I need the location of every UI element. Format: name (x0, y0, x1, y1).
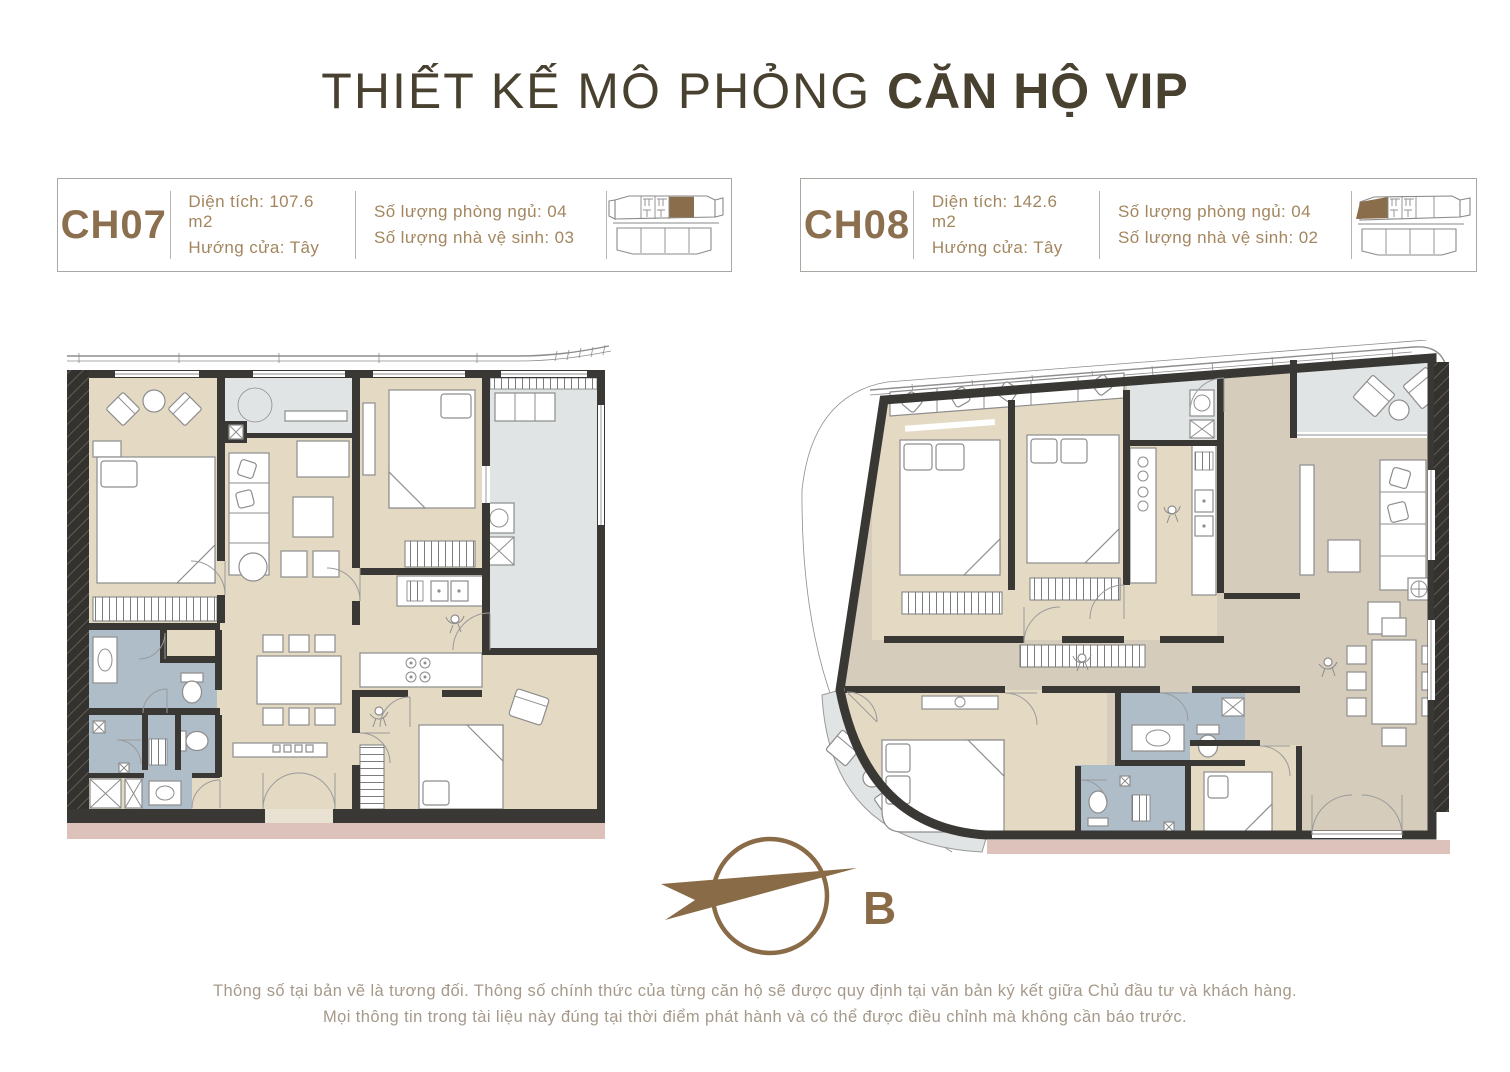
tv-cabinet-icon (297, 441, 349, 477)
pouf-icon (239, 553, 267, 581)
base-strip (67, 823, 605, 839)
compass-label: B (863, 882, 896, 934)
floorplan-ch08 (772, 340, 1462, 860)
brochure-page: THIẾT KẾ MÔ PHỎNG CĂN HỘ VIP CH07 Diện t… (0, 0, 1510, 1072)
shaft-icon (90, 779, 121, 808)
shaft-icon (1190, 420, 1214, 438)
unit-info-ch07: CH07 Diện tích: 107.6 m2 Hướng cửa: Tây … (57, 178, 732, 272)
side-table-icon (1389, 400, 1409, 420)
unit-area: Diện tích: 107.6 m2 (188, 192, 337, 232)
unit-door-direction: Hướng cửa: Tây (932, 238, 1081, 258)
unit-code-ch07: CH07 (58, 179, 170, 271)
closet-icon (363, 403, 375, 475)
unit-bedrooms: Số lượng phòng ngủ: 04 (1118, 202, 1333, 222)
footer-line-2: Mọi thông tin trong tài liệu này đúng tạ… (0, 1008, 1510, 1027)
compass: B (645, 822, 905, 972)
shaft-icon (125, 779, 142, 808)
floorplan-ch07 (57, 345, 617, 845)
ac-unit-icon (495, 393, 555, 421)
kitchen-sink-counter-icon (1192, 445, 1216, 595)
kitchen-sink-counter-icon (397, 576, 483, 606)
page-title: THIẾT KẾ MÔ PHỎNG CĂN HỘ VIP (0, 62, 1510, 120)
planter-icon (490, 378, 597, 389)
wardrobe-icon (405, 541, 475, 567)
console-table-icon (233, 743, 327, 757)
unit-specs-1: Diện tích: 142.6 m2 Hướng cửa: Tây (914, 179, 1099, 271)
shaft-icon (229, 425, 243, 439)
unit-locator-ch07 (607, 179, 731, 271)
wardrobe-icon (1030, 578, 1120, 600)
floor-outlet-icon (1408, 578, 1430, 600)
planter-icon (285, 411, 347, 421)
stool-icon (281, 551, 307, 577)
floor-drain-icon (119, 763, 129, 773)
shower-grille-icon (1132, 795, 1150, 821)
unit-code-ch08: CH08 (801, 179, 913, 271)
base-strip (987, 840, 1450, 854)
stool-icon (313, 551, 339, 577)
floor-drain-icon (1120, 776, 1130, 786)
bed-icon (900, 440, 1000, 575)
stool-icon (1328, 540, 1360, 572)
unit-specs-1: Diện tích: 107.6 m2 Hướng cửa: Tây (170, 179, 355, 271)
unit-bedrooms: Số lượng phòng ngủ: 04 (374, 202, 588, 222)
page-title-regular: THIẾT KẾ MÔ PHỎNG (321, 63, 887, 119)
unit-info-ch08: CH08 Diện tích: 142.6 m2 Hướng cửa: Tây … (800, 178, 1477, 272)
bed-icon (389, 390, 475, 508)
unit-bathrooms: Số lượng nhà vệ sinh: 02 (1118, 228, 1333, 248)
balcony-rail (67, 345, 611, 363)
footer-line-1: Thông số tại bản vẽ là tương đối. Thông … (0, 982, 1510, 1001)
shower-grille-icon (149, 739, 167, 765)
vanity-sink-icon (1132, 725, 1184, 751)
washing-machine-icon (1190, 390, 1214, 416)
bed-icon (97, 457, 215, 583)
tv-cabinet-icon (1300, 465, 1314, 575)
unit-specs-2: Số lượng phòng ngủ: 04 Số lượng nhà vệ s… (356, 179, 606, 271)
sofa-icon (1380, 460, 1426, 590)
coffee-table-icon (293, 497, 333, 537)
wardrobe-icon (902, 592, 1002, 614)
unit-area: Diện tích: 142.6 m2 (932, 192, 1081, 232)
locator-map-ch07-icon (607, 186, 731, 264)
unit-bathrooms: Số lượng nhà vệ sinh: 03 (374, 228, 588, 248)
unit-specs-2: Số lượng phòng ngủ: 04 Số lượng nhà vệ s… (1100, 179, 1351, 271)
entry-gap (265, 809, 333, 823)
bed-icon (419, 725, 503, 809)
shaft-icon (1222, 698, 1244, 716)
wardrobe-icon (360, 745, 384, 809)
stove-counter-icon (360, 653, 482, 687)
toilet-icon (177, 731, 208, 751)
vanity-sink-icon (93, 637, 117, 683)
page-title-highlight: CĂN HỘ VIP (887, 63, 1189, 119)
bed-icon (1027, 435, 1119, 563)
toilet-icon (181, 673, 203, 703)
bed-icon (882, 740, 1004, 832)
locator-map-ch08-icon (1352, 186, 1476, 264)
stove-counter-icon (1130, 448, 1156, 583)
side-table-icon (143, 390, 165, 412)
wardrobe-icon (93, 597, 217, 621)
nightstand-icon (93, 441, 121, 457)
floor-drain-icon (93, 721, 105, 733)
vanity-sink-icon (149, 781, 181, 805)
unit-door-direction: Hướng cửa: Tây (188, 238, 337, 258)
unit-locator-ch08 (1352, 179, 1476, 271)
dresser-icon (922, 696, 998, 709)
bed-icon (1204, 772, 1272, 832)
dining-set-icon (257, 635, 341, 725)
